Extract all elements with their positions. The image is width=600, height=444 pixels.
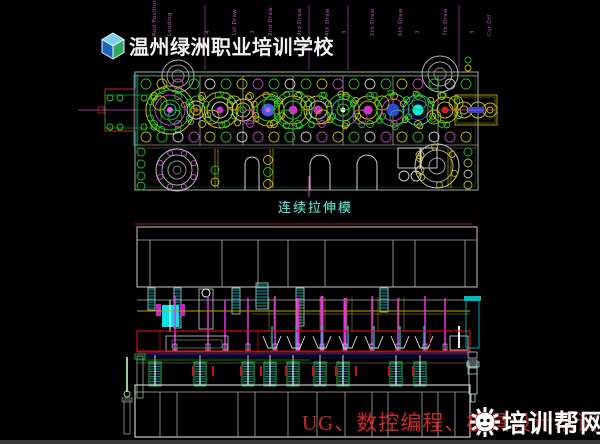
sun-face-icon [468,404,502,440]
draw-cup [391,326,409,348]
spring-cylinder [414,355,426,386]
dimension-label: 3 [342,30,348,34]
school-logo-icon [100,32,126,60]
dimension-label: 4th Draw [325,8,331,36]
spring-cylinder [390,355,402,386]
dimension-label: 6th Draw [398,8,404,36]
draw-cup [313,326,331,348]
arch-cutout [357,155,377,190]
draw-cup [263,326,281,348]
dimension-label: Leading [167,12,173,36]
dimension-label: 2nd Draw [268,7,274,36]
dimension-label: Cut Off [487,14,493,36]
spring-cylinder [314,355,326,386]
draw-cup [365,326,383,348]
dimension-label: 5th Draw [370,8,376,36]
punch [206,296,210,350]
spring-cylinder [337,355,349,386]
punch [273,296,277,350]
bottom-edge-strip [0,440,600,444]
dimension-label: 1st Draw [232,9,238,36]
dimension-label: 3 [470,30,476,34]
punch [246,298,250,350]
draw-cup [287,326,305,348]
footer-brand: 培训帮网 [468,404,600,440]
drawing-title: 连续拉伸模 [278,197,353,216]
cad-canvas[interactable]: 温州绿洲职业培训学校 连续拉伸模 Rod PositionLeading41st… [0,0,600,444]
punch [343,298,347,350]
dimension-label: 7th Draw [443,8,449,36]
dimension-label: 4 [205,30,211,34]
footer-brand-text: 培训帮网 [502,404,600,440]
section-view [122,224,481,437]
dimension-label: Rod Position [152,0,158,36]
dimension-label: 3 [250,30,256,34]
dimension-label: 3rd Draw [297,8,303,36]
arch-cutout [310,155,330,190]
spring [232,288,240,314]
spring [148,288,155,310]
cad-drawing [0,0,600,444]
punch [443,298,447,350]
punch [223,300,227,350]
guide-bushing [156,149,198,191]
draw-cup [339,326,357,348]
guide-bushing [422,56,458,92]
dimension-label: 3 [415,30,421,34]
arch-cutout [245,157,259,190]
